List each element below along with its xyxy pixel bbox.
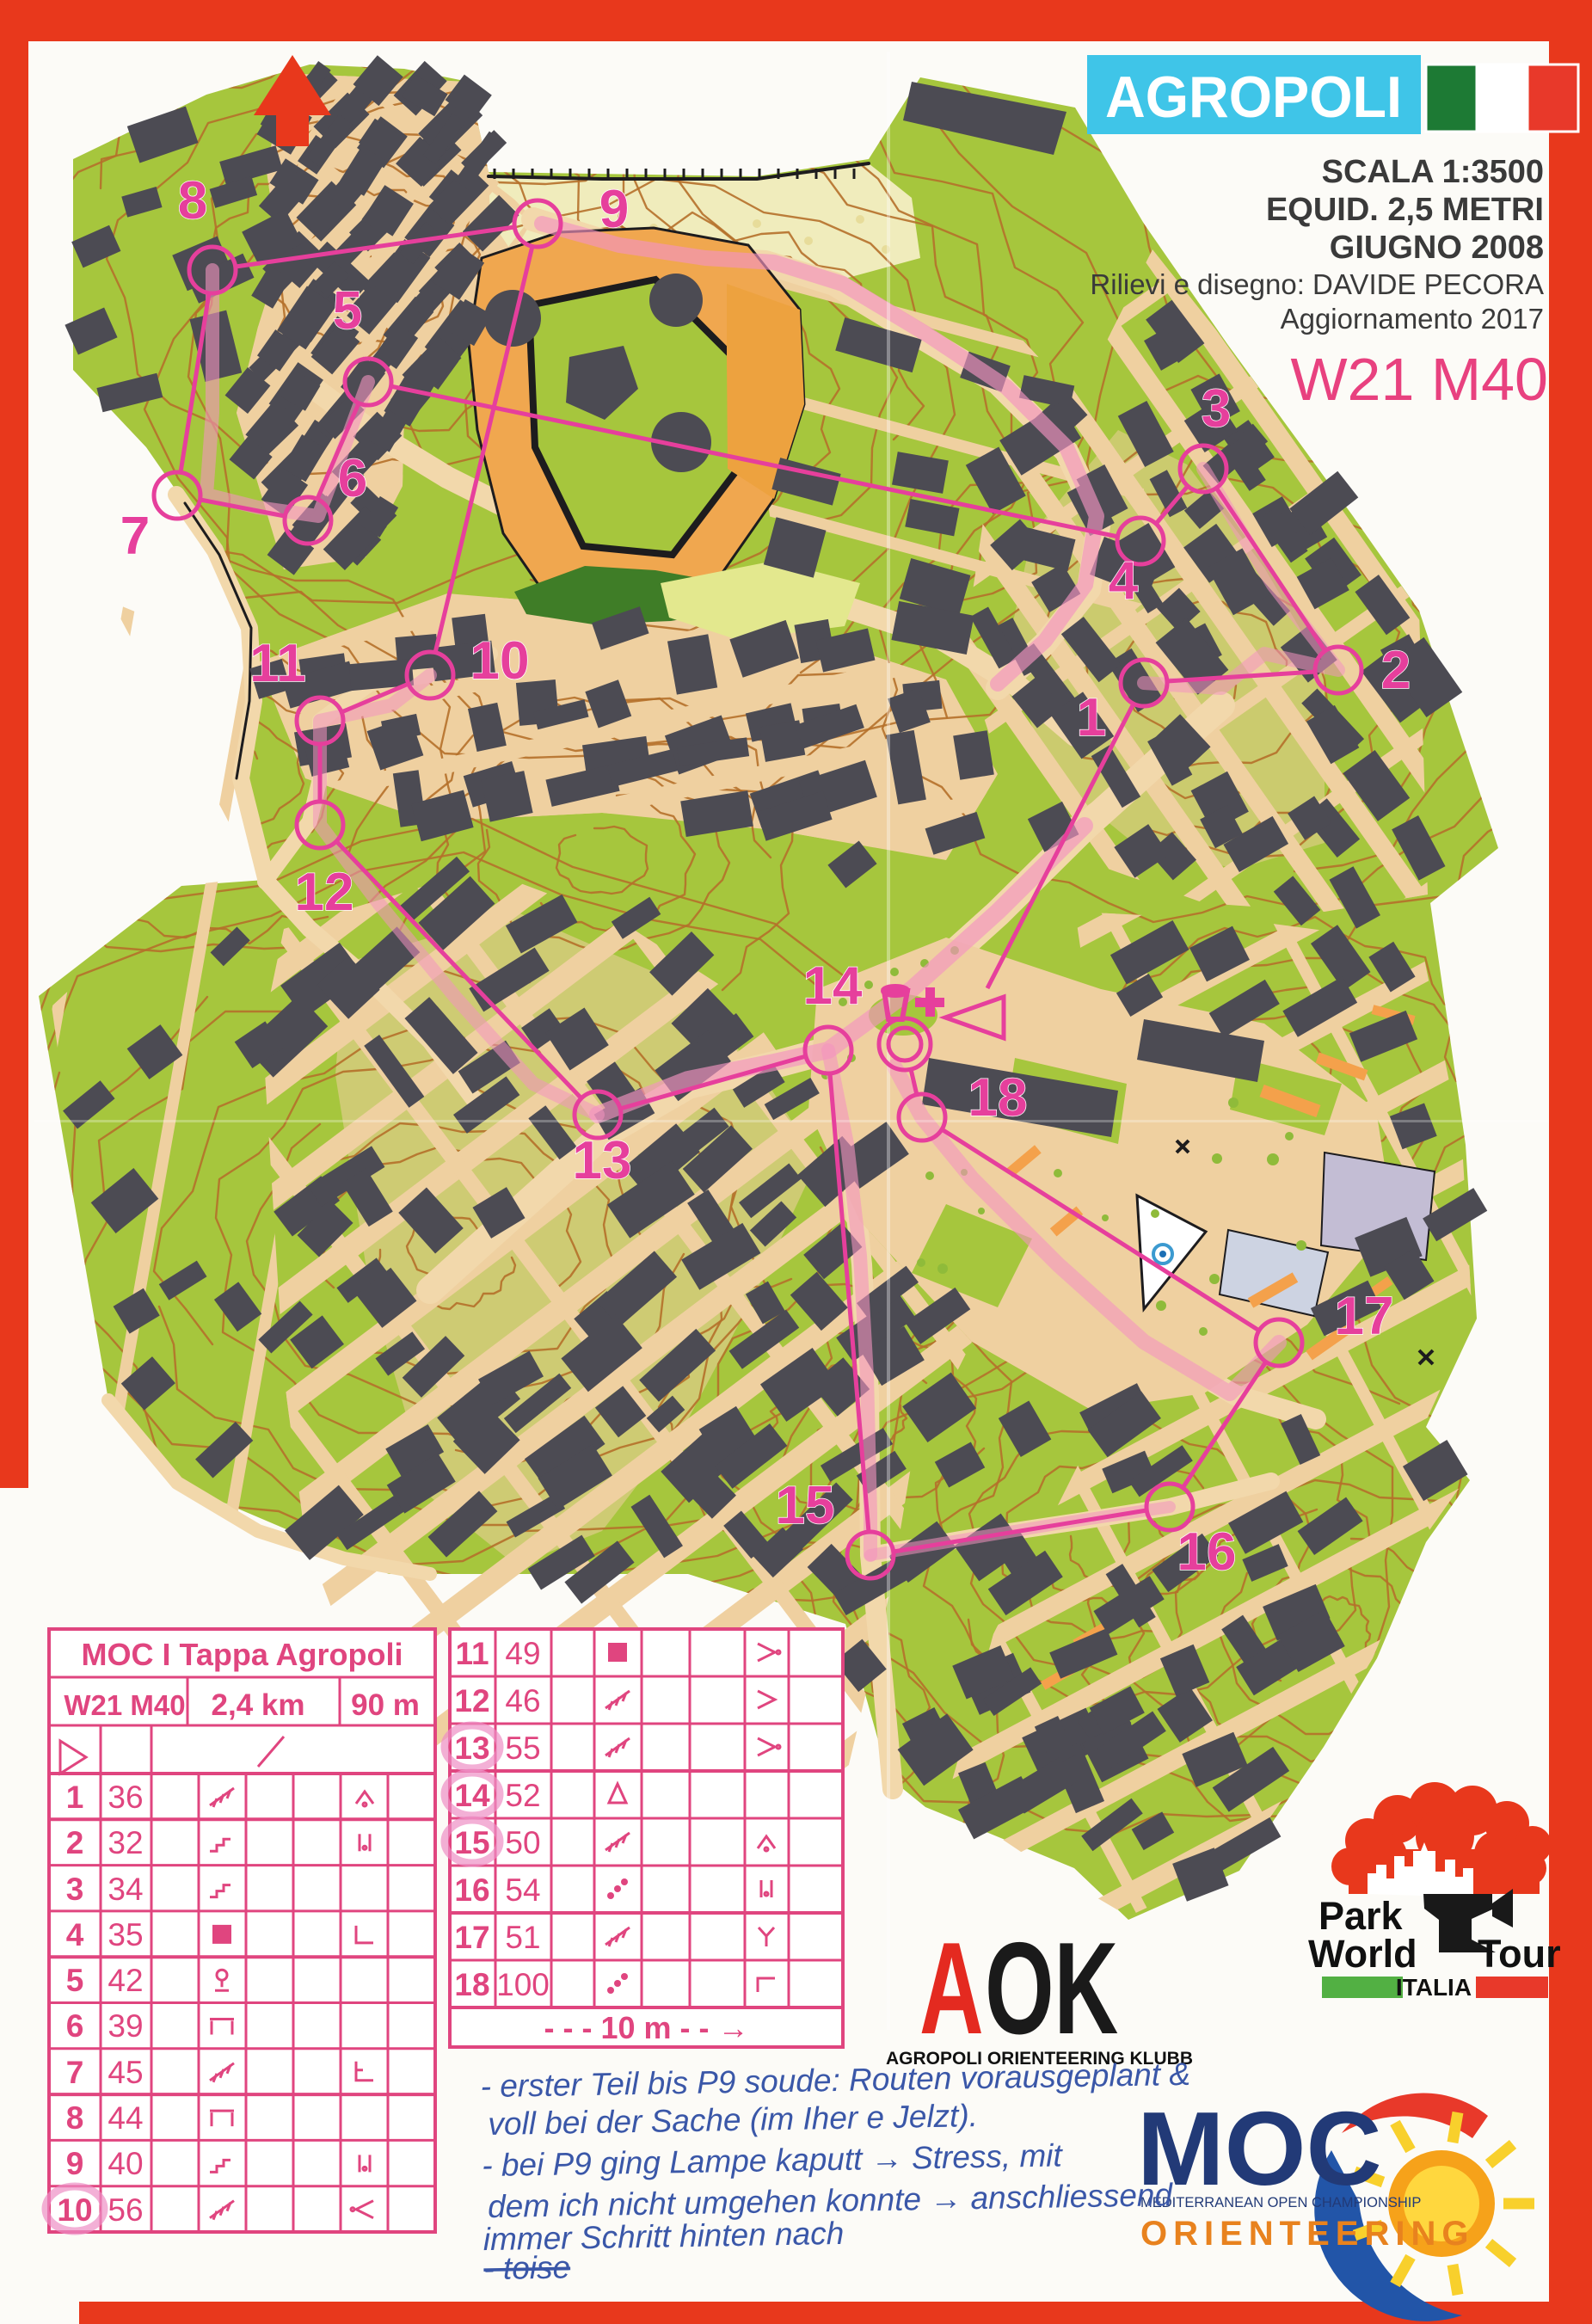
svg-text:2: 2 <box>1381 641 1411 700</box>
svg-text:10: 10 <box>57 2192 92 2228</box>
svg-text:ORIENTEERING: ORIENTEERING <box>1140 2215 1474 2253</box>
svg-text:9: 9 <box>599 180 629 239</box>
svg-text:100: 100 <box>496 1967 550 2002</box>
svg-text:1: 1 <box>66 1780 84 1815</box>
svg-text:10: 10 <box>470 631 530 691</box>
svg-text:3: 3 <box>1202 379 1231 439</box>
svg-text:42: 42 <box>108 1963 143 1998</box>
svg-text:50: 50 <box>505 1825 540 1860</box>
svg-text:16: 16 <box>1177 1522 1237 1582</box>
svg-text:39: 39 <box>108 2008 143 2044</box>
svg-text:34: 34 <box>108 1872 143 1907</box>
svg-text:8: 8 <box>178 171 207 231</box>
svg-text:4: 4 <box>66 1917 84 1952</box>
svg-text:44: 44 <box>108 2100 143 2136</box>
svg-text:40: 40 <box>108 2146 143 2181</box>
svg-text:EQUID. 2,5 METRI: EQUID. 2,5 METRI <box>1266 192 1544 228</box>
svg-text:MEDITERRANEAN OPEN CHAMPIONSHI: MEDITERRANEAN OPEN CHAMPIONSHIP <box>1140 2195 1421 2210</box>
svg-text:18: 18 <box>454 1967 489 2002</box>
svg-text:World: World <box>1308 1932 1417 1976</box>
svg-text:2: 2 <box>66 1825 84 1860</box>
svg-text:3: 3 <box>66 1872 84 1907</box>
svg-text:1: 1 <box>1077 688 1106 747</box>
svg-text:36: 36 <box>108 1780 143 1815</box>
svg-text:49: 49 <box>505 1636 540 1671</box>
svg-text:6: 6 <box>338 449 367 508</box>
svg-text:35: 35 <box>108 1917 143 1952</box>
svg-text:56: 56 <box>108 2192 143 2228</box>
svg-text:- toise: - toise <box>483 2249 570 2286</box>
svg-text:32: 32 <box>108 1825 143 1860</box>
svg-text:5: 5 <box>333 281 362 341</box>
svg-text:4: 4 <box>1109 551 1139 611</box>
svg-text:W21 M40: W21 M40 <box>1290 346 1548 413</box>
svg-text:8: 8 <box>66 2100 84 2136</box>
svg-text:SCALA 1:3500: SCALA 1:3500 <box>1322 154 1544 190</box>
svg-text:16: 16 <box>454 1872 489 1908</box>
svg-text:7: 7 <box>66 2055 84 2090</box>
svg-text:13: 13 <box>454 1731 489 1766</box>
svg-text:MOC: MOC <box>1137 2090 1382 2207</box>
svg-text:11: 11 <box>249 634 306 693</box>
svg-text:17: 17 <box>1335 1287 1394 1346</box>
svg-text:6: 6 <box>66 2008 84 2044</box>
svg-text:GIUGNO 2008: GIUGNO 2008 <box>1330 230 1544 266</box>
svg-text:55: 55 <box>505 1731 540 1766</box>
svg-text:54: 54 <box>505 1872 540 1908</box>
svg-text:- - - 10 m - - →: - - - 10 m - - → <box>544 2010 748 2045</box>
svg-text:2,4 km: 2,4 km <box>212 1688 305 1722</box>
svg-text:AGROPOLI: AGROPOLI <box>1105 65 1402 130</box>
svg-text:MOC I Tappa Agropoli: MOC I Tappa Agropoli <box>82 1637 403 1672</box>
svg-text:9: 9 <box>66 2146 84 2181</box>
svg-text:ITALIA: ITALIA <box>1396 1974 1472 2001</box>
svg-text:OK: OK <box>985 1915 1118 2062</box>
svg-text:Rilievi e disegno: DAVIDE PECO: Rilievi e disegno: DAVIDE PECORA <box>1090 268 1544 300</box>
svg-text:15: 15 <box>454 1825 489 1860</box>
svg-text:Aggiornamento 2017: Aggiornamento 2017 <box>1281 303 1544 335</box>
svg-text:90 m: 90 m <box>351 1688 420 1722</box>
svg-text:18: 18 <box>968 1068 1028 1128</box>
svg-text:52: 52 <box>505 1778 540 1813</box>
svg-text:17: 17 <box>454 1920 489 1955</box>
svg-text:14: 14 <box>454 1778 490 1813</box>
svg-text:13: 13 <box>573 1131 632 1190</box>
svg-text:12: 12 <box>295 863 354 922</box>
svg-text:5: 5 <box>66 1963 84 1998</box>
svg-text:14: 14 <box>803 956 863 1016</box>
svg-text:15: 15 <box>776 1476 835 1535</box>
svg-text:51: 51 <box>505 1920 540 1955</box>
svg-text:W21 M40: W21 M40 <box>64 1689 185 1721</box>
svg-text:A: A <box>919 1915 984 2062</box>
svg-text:7: 7 <box>120 507 150 566</box>
svg-text:12: 12 <box>454 1683 489 1718</box>
svg-text:Tour: Tour <box>1478 1932 1561 1976</box>
svg-text:11: 11 <box>455 1636 489 1671</box>
svg-text:45: 45 <box>108 2055 143 2090</box>
svg-text:46: 46 <box>505 1683 540 1718</box>
